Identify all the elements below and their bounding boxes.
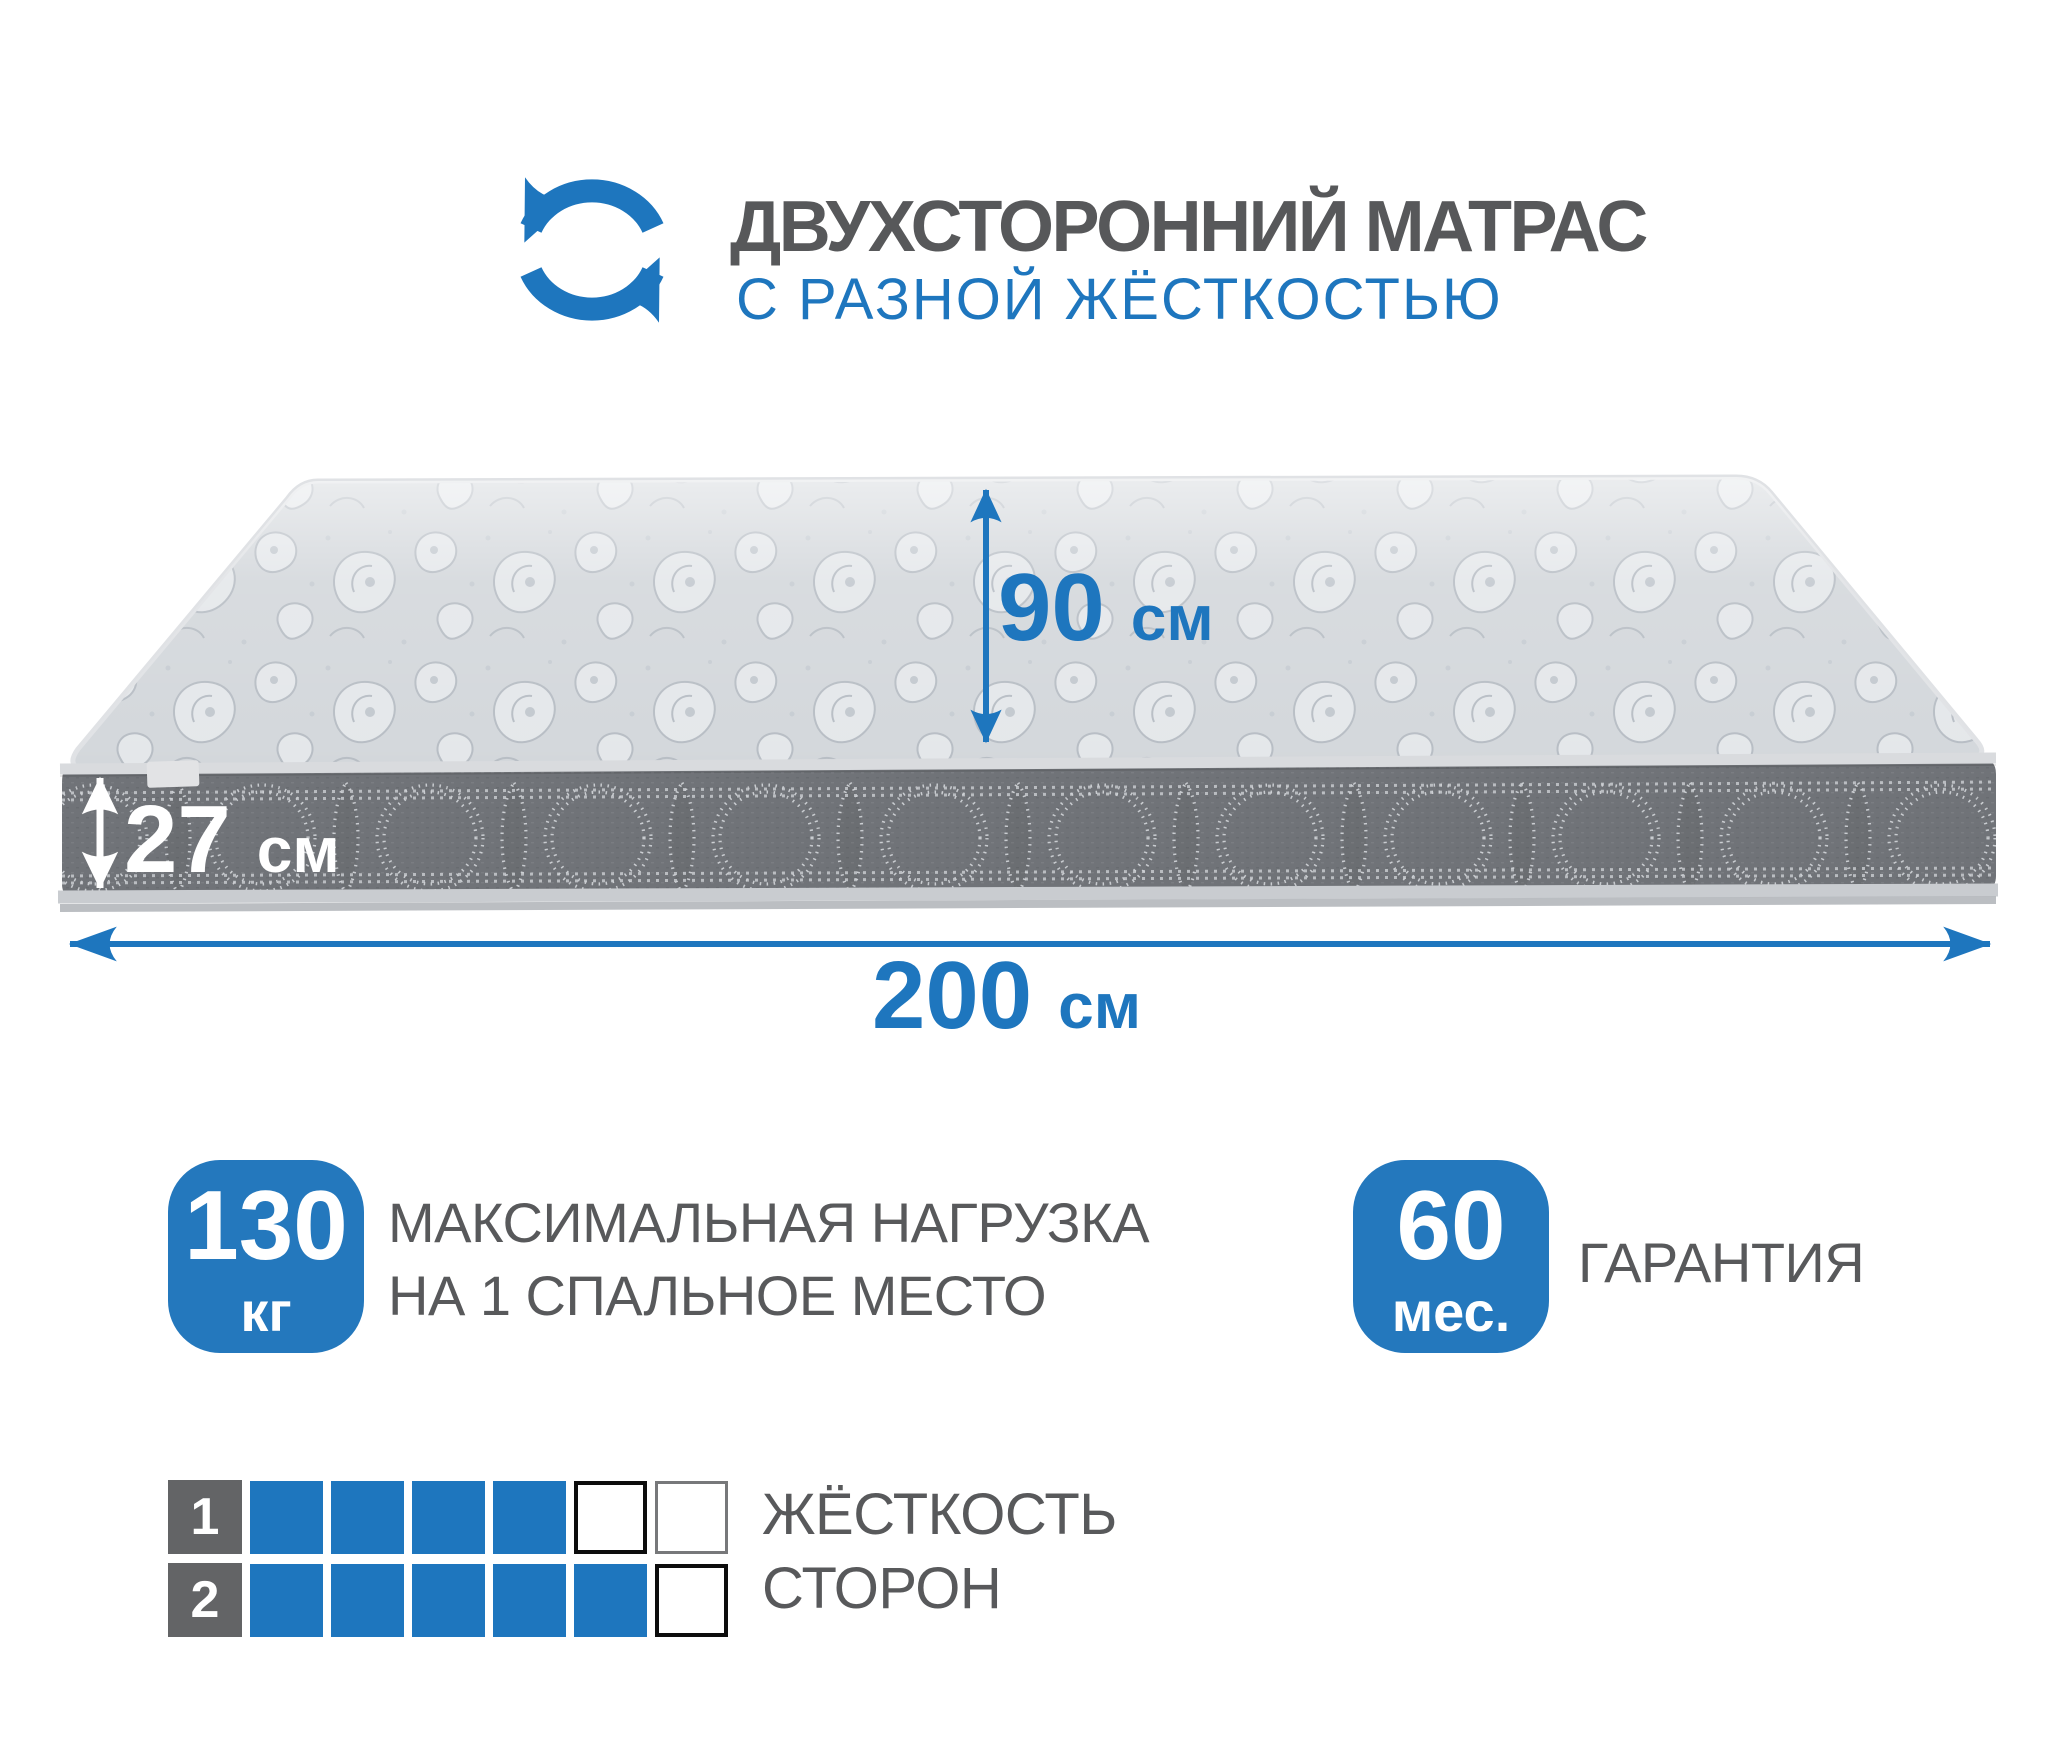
max-load-caption-line1: МАКСИМАЛЬНАЯ НАГРУЗКА — [388, 1186, 1149, 1259]
max-load-caption: МАКСИМАЛЬНАЯ НАГРУЗКА НА 1 СПАЛЬНОЕ МЕСТ… — [388, 1186, 1149, 1332]
length-dimension-label: 200 см — [872, 948, 1141, 1044]
firmness-cell — [331, 1481, 404, 1554]
max-load-value: 130 — [184, 1176, 348, 1274]
firmness-caption: ЖЁСТКОСТЬ СТОРОН — [762, 1478, 1117, 1626]
firmness-row-label: 2 — [168, 1563, 242, 1637]
max-load-badge: 130 кг — [168, 1160, 364, 1353]
firmness-row-side2: 2 — [168, 1563, 728, 1637]
infographic: ДВУХСТОРОННИЙ МАТРАС С РАЗНОЙ ЖЁСТКОСТЬЮ — [0, 0, 2048, 1757]
height-unit: см — [1131, 586, 1214, 650]
length-value: 200 — [872, 948, 1032, 1044]
mattress-label-tag — [147, 760, 200, 788]
warranty-badge: 60 мес. — [1353, 1160, 1549, 1353]
height-dimension-label: 90 см — [998, 560, 1214, 656]
firmness-scale: 1 2 — [168, 1480, 728, 1637]
firmness-cell — [412, 1481, 485, 1554]
firmness-row-label: 1 — [168, 1480, 242, 1554]
warranty-unit: мес. — [1392, 1284, 1511, 1340]
mattress-side-band — [55, 750, 2005, 910]
max-load-unit: кг — [240, 1284, 291, 1340]
warranty-value: 60 — [1396, 1176, 1505, 1274]
max-load-caption-line2: НА 1 СПАЛЬНОЕ МЕСТО — [388, 1259, 1149, 1332]
firmness-cell — [250, 1481, 323, 1554]
firmness-caption-line1: ЖЁСТКОСТЬ — [762, 1478, 1117, 1552]
firmness-cell — [493, 1564, 566, 1637]
length-unit: см — [1058, 974, 1141, 1038]
firmness-cell — [655, 1481, 728, 1554]
firmness-cell — [574, 1564, 647, 1637]
firmness-caption-line2: СТОРОН — [762, 1552, 1117, 1626]
thickness-unit: см — [257, 818, 340, 882]
firmness-row-side1: 1 — [168, 1480, 728, 1554]
firmness-cell — [250, 1564, 323, 1637]
firmness-cell — [493, 1481, 566, 1554]
firmness-cell — [331, 1564, 404, 1637]
thickness-value: 27 — [124, 792, 231, 888]
firmness-cell — [574, 1481, 647, 1554]
firmness-cell — [412, 1564, 485, 1637]
height-value: 90 — [998, 560, 1105, 656]
warranty-caption: ГАРАНТИЯ — [1578, 1226, 1864, 1299]
thickness-dimension-label: 27 см — [124, 792, 340, 888]
firmness-cell — [655, 1564, 728, 1637]
